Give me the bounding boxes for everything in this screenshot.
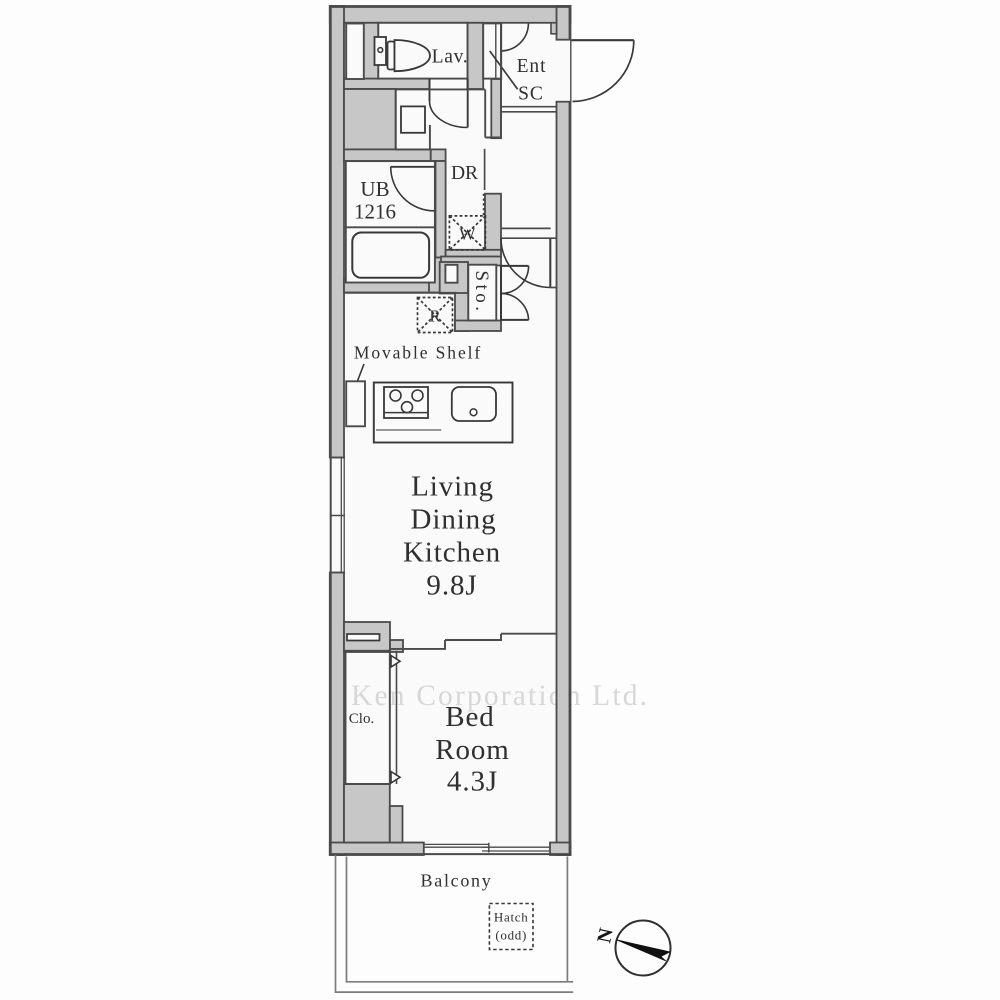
svg-text:DR: DR bbox=[451, 163, 478, 184]
svg-text:9.8J: 9.8J bbox=[426, 570, 477, 602]
svg-text:1216: 1216 bbox=[354, 200, 396, 224]
svg-text:Clo.: Clo. bbox=[349, 711, 374, 727]
svg-text:Ent: Ent bbox=[517, 56, 547, 77]
svg-text:Sto.: Sto. bbox=[471, 270, 492, 314]
svg-text:UB: UB bbox=[360, 177, 389, 201]
svg-text:Room: Room bbox=[435, 734, 510, 766]
svg-text:(odd): (odd) bbox=[495, 928, 527, 943]
svg-text:W: W bbox=[459, 225, 476, 244]
svg-text:Hatch: Hatch bbox=[494, 910, 529, 925]
svg-text:Dining: Dining bbox=[411, 504, 497, 536]
svg-text:SC: SC bbox=[518, 84, 544, 105]
svg-text:Balcony: Balcony bbox=[421, 871, 493, 891]
svg-text:Movable Shelf: Movable Shelf bbox=[354, 343, 482, 363]
svg-text:Living: Living bbox=[411, 471, 494, 503]
svg-text:4.3J: 4.3J bbox=[447, 766, 498, 798]
svg-text:R: R bbox=[429, 307, 441, 326]
svg-text:Lav.: Lav. bbox=[432, 47, 469, 68]
svg-text:Bed: Bed bbox=[445, 701, 494, 733]
svg-text:Kitchen: Kitchen bbox=[403, 537, 501, 569]
